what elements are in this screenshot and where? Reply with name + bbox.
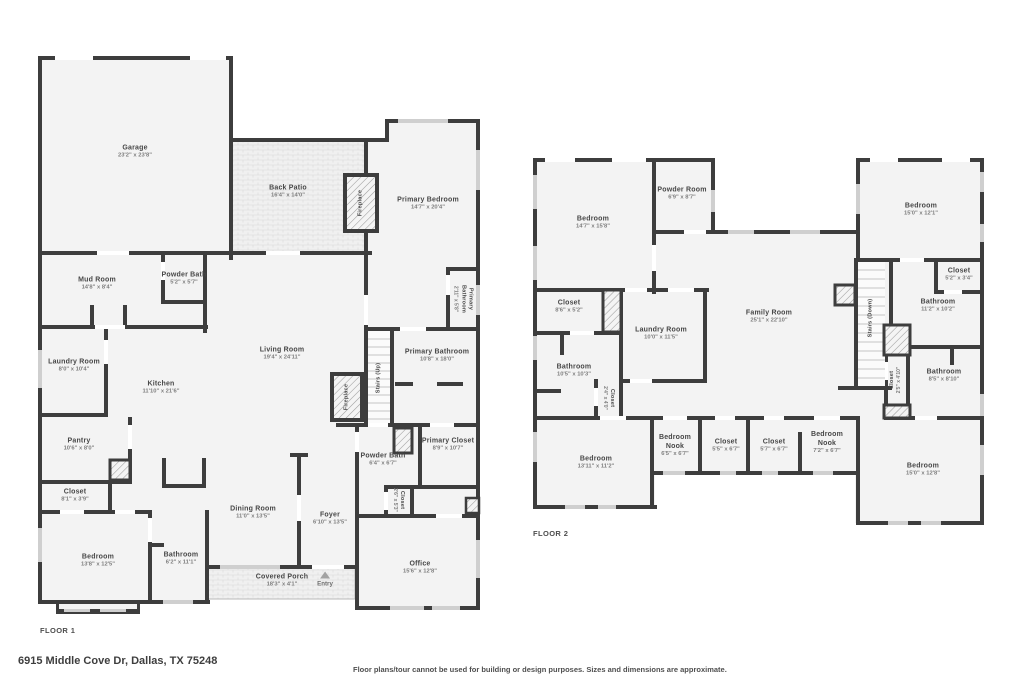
room-label-closet-foyer: Closet 2'6" x 5'3": [391, 488, 405, 512]
entry-arrow-icon: [320, 571, 330, 578]
room-label-office: Office 15'6" x 12'8": [403, 560, 437, 577]
room-label-closet-nook-1: Closet 5'5" x 6'7": [712, 438, 740, 455]
room-label-closet-f2-small-left: Closet 2'4" x 4'0": [601, 386, 615, 410]
room-label-closet-f1: Closet 8'1" x 3'9": [61, 488, 89, 505]
room-label-bedroom-f2-bottomleft: Bedroom 13'11" x 11'2": [578, 455, 615, 472]
room-label-fireplace-patio: Fireplace: [357, 190, 364, 216]
room-label-closet-f2-small-right: Closet 2'5" x 4'10": [889, 367, 903, 394]
room-label-closet-nook-2: Closet 5'7" x 6'7": [760, 438, 788, 455]
floorplan-drawing: [0, 0, 1024, 683]
room-label-closet-f2-topright: Closet 5'2" x 3'4": [945, 267, 973, 284]
room-label-bedroom-f2-topleft: Bedroom 14'7" x 15'8": [576, 215, 610, 232]
room-label-primary-closet: Primary Closet 8'9" x 10'7": [422, 437, 474, 454]
floor1-tag: FLOOR 1: [40, 626, 75, 635]
floorplan-page: { "page": { "address": "6915 Middle Cove…: [0, 0, 1024, 683]
room-label-bedroom-nook-2: Bedroom Nook 7'2" x 6'7": [803, 430, 851, 456]
room-label-family-room: Family Room 25'1" x 22'10": [746, 309, 792, 326]
room-label-primary-bathroom: Primary Bathroom 10'8" x 18'0": [405, 348, 469, 365]
room-label-bedroom-f2-bottomright: Bedroom 15'0" x 12'8": [906, 462, 940, 479]
room-label-powder-bath-center: Powder Bath 6'4" x 6'7": [361, 452, 406, 469]
room-label-bathroom-f2-bottomright: Bathroom 8'5" x 8'10": [927, 368, 962, 385]
room-label-living-room: Living Room 19'4" x 24'11": [260, 346, 305, 363]
disclaimer-text: Floor plans/tour cannot be used for buil…: [353, 665, 727, 674]
room-label-bedroom-f2-topright: Bedroom 15'0" x 12'1": [904, 202, 938, 219]
room-label-pantry: Pantry 10'6" x 8'0": [64, 437, 95, 454]
room-label-foyer: Foyer 6'10" x 13'5": [313, 511, 347, 528]
room-label-bedroom-f1: Bedroom 13'8" x 12'5": [81, 553, 115, 570]
room-label-dining-room: Dining Room 11'0" x 13'5": [230, 505, 276, 522]
room-label-laundry-room-f1: Laundry Room 8'0" x 10'4": [48, 358, 100, 375]
room-label-stairs-down: Stairs (Down): [867, 299, 874, 338]
room-label-kitchen: Kitchen 11'10" x 21'6": [143, 380, 180, 397]
room-label-primary-bathroom-nook: Primary Bathroom 2'11" x 5'8": [452, 275, 473, 323]
room-label-back-patio: Back Patio 16'4" x 14'0": [269, 184, 307, 201]
room-label-bathroom-f2-topright: Bathroom 11'2" x 10'2": [921, 298, 956, 315]
room-label-bathroom-f2-left: Bathroom 10'5" x 10'3": [557, 363, 592, 380]
room-label-powder-room: Powder Room 6'9" x 8'7": [657, 186, 706, 203]
room-label-stairs-up: Stairs (Up): [375, 363, 382, 393]
room-label-bedroom-nook-1: Bedroom Nook 6'5" x 6'7": [651, 433, 699, 459]
floor2-tag: FLOOR 2: [533, 529, 568, 538]
room-label-garage: Garage 23'2" x 23'8": [118, 144, 152, 161]
room-label-fireplace-living: Fireplace: [343, 384, 350, 410]
room-label-covered-porch: Covered Porch 18'3" x 4'1": [256, 573, 308, 590]
floor1-plan: [38, 56, 480, 614]
room-label-laundry-room-f2: Laundry Room 10'0" x 11'5": [635, 326, 687, 343]
room-label-mud-room: Mud Room 14'8" x 8'4": [78, 276, 116, 293]
room-label-closet-f2-topleft: Closet 8'6" x 5'2": [555, 299, 583, 316]
property-address: 6915 Middle Cove Dr, Dallas, TX 75248: [18, 655, 217, 667]
room-label-primary-bedroom: Primary Bedroom 14'7" x 20'4": [397, 196, 459, 213]
room-label-bathroom-f1: Bathroom 6'2" x 11'1": [164, 551, 199, 568]
entry-label: Entry: [317, 571, 333, 588]
room-label-powder-bath-top: Powder Bath 5'2" x 5'7": [162, 271, 207, 288]
